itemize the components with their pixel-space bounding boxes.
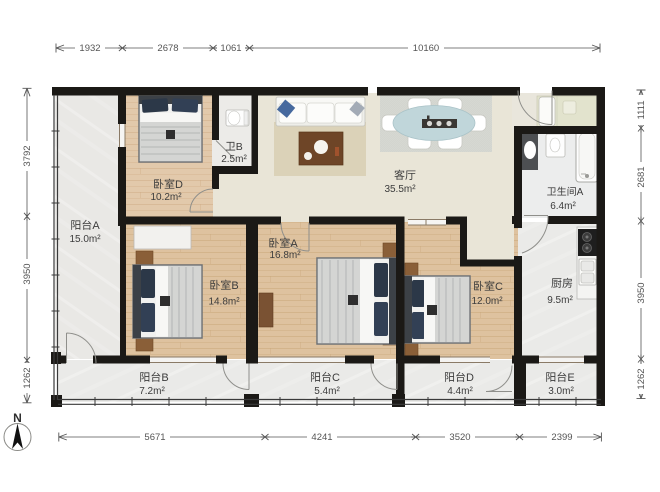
svg-text:C: C — [495, 281, 503, 293]
svg-text:6.4m²: 6.4m² — [550, 201, 576, 212]
svg-text:4.4m²: 4.4m² — [447, 386, 473, 397]
svg-text:35.5m²: 35.5m² — [384, 184, 416, 195]
svg-text:1262: 1262 — [22, 367, 33, 388]
svg-text:1262: 1262 — [636, 368, 647, 389]
svg-text:1061: 1061 — [220, 43, 241, 54]
svg-text:10.2m²: 10.2m² — [150, 192, 182, 203]
svg-text:N: N — [13, 411, 22, 425]
svg-text:15.0m²: 15.0m² — [69, 234, 101, 245]
svg-text:D: D — [175, 179, 183, 191]
svg-text:A: A — [290, 238, 298, 250]
svg-text:2678: 2678 — [157, 43, 178, 54]
svg-text:3520: 3520 — [449, 432, 470, 443]
svg-text:5.4m²: 5.4m² — [314, 386, 340, 397]
svg-text:2399: 2399 — [551, 432, 572, 443]
svg-text:10160: 10160 — [413, 43, 439, 54]
svg-text:D: D — [466, 372, 474, 384]
svg-text:3792: 3792 — [22, 145, 33, 166]
svg-text:9.5m²: 9.5m² — [547, 295, 573, 306]
svg-text:E: E — [567, 372, 574, 384]
svg-text:A: A — [92, 220, 100, 232]
svg-text:B: B — [236, 141, 243, 153]
svg-text:3.0m²: 3.0m² — [548, 386, 574, 397]
svg-text:16.8m²: 16.8m² — [269, 250, 301, 261]
svg-text:2.5m²: 2.5m² — [221, 154, 247, 165]
svg-text:B: B — [161, 372, 168, 384]
svg-text:7.2m²: 7.2m² — [139, 386, 165, 397]
svg-text:4241: 4241 — [311, 432, 332, 443]
svg-text:2681: 2681 — [636, 166, 647, 187]
svg-text:C: C — [332, 372, 340, 384]
svg-text:14.8m²: 14.8m² — [208, 297, 240, 308]
svg-text:3950: 3950 — [636, 282, 647, 303]
svg-text:1932: 1932 — [79, 43, 100, 54]
svg-text:3950: 3950 — [22, 263, 33, 284]
svg-text:5671: 5671 — [144, 432, 165, 443]
svg-text:A: A — [577, 187, 584, 198]
svg-text:12.0m²: 12.0m² — [471, 296, 503, 307]
svg-text:1111: 1111 — [636, 100, 647, 119]
svg-text:B: B — [231, 280, 238, 292]
